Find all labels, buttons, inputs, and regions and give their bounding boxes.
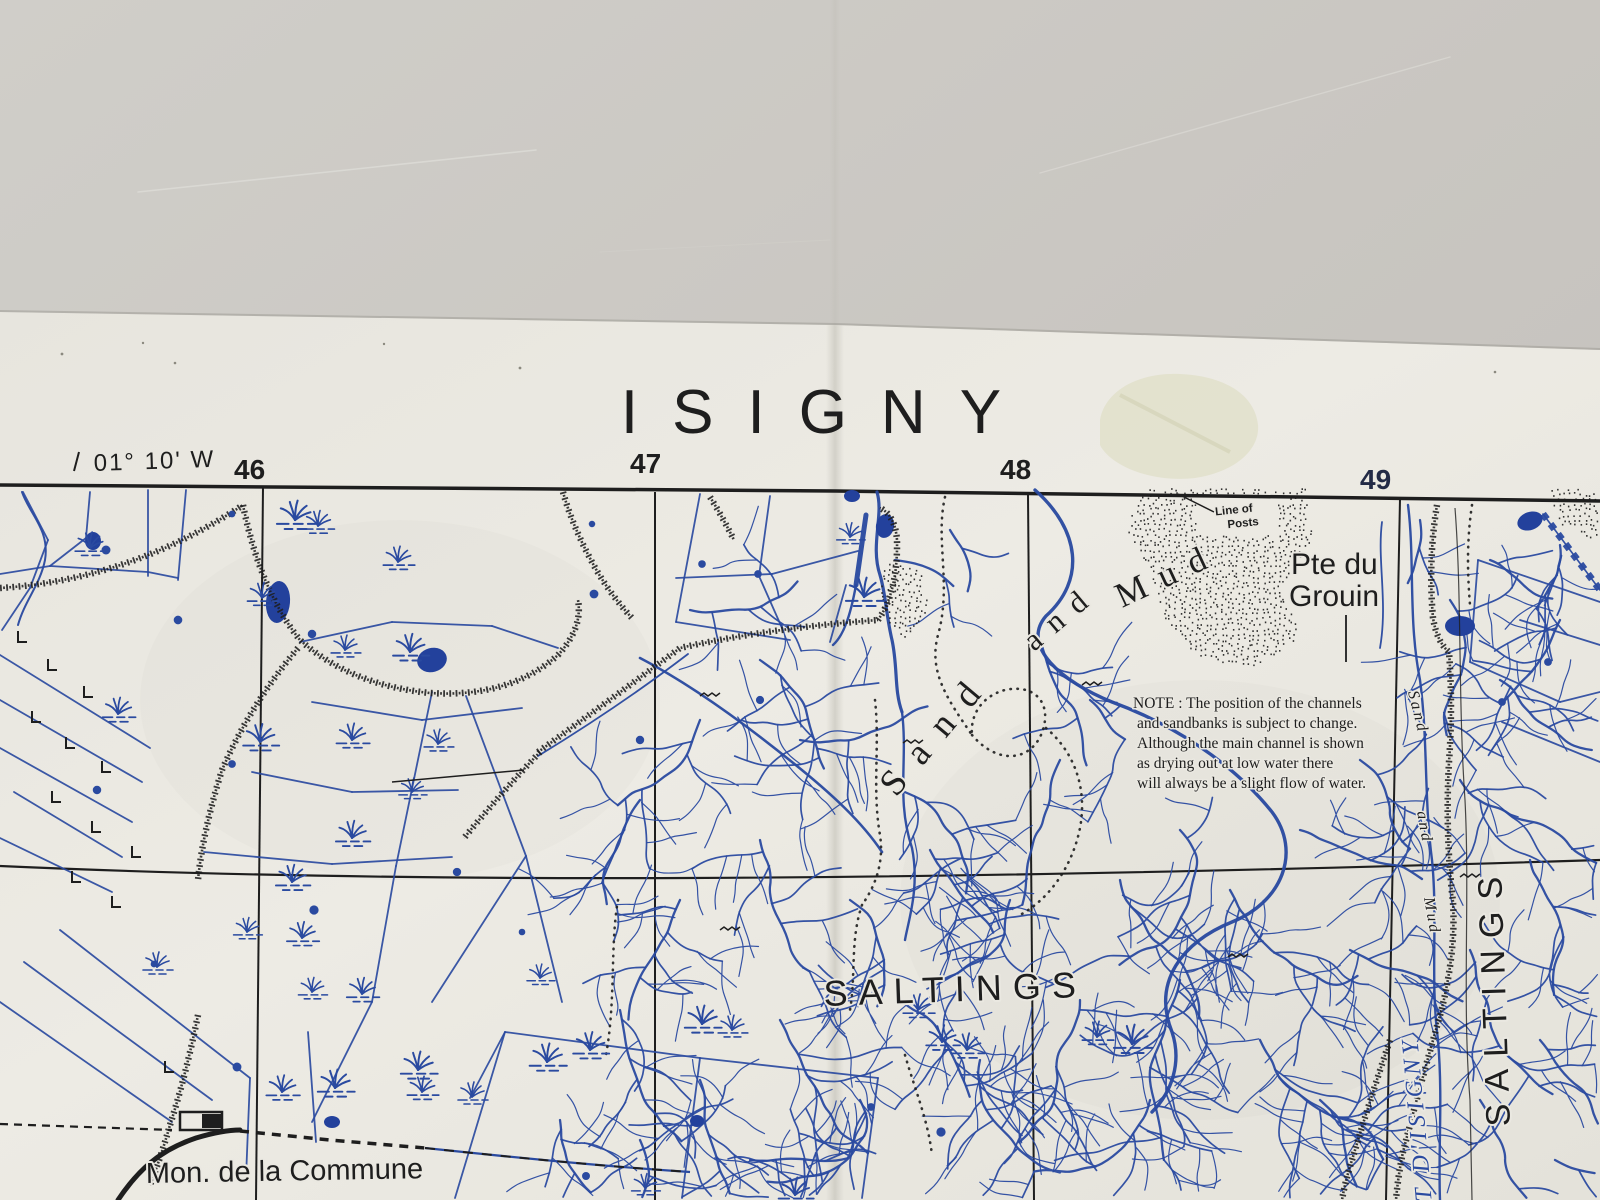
pte-du-grouin-label-2: Grouin	[1289, 580, 1379, 613]
note-line: as drying out at low water there	[1137, 755, 1333, 772]
graticule-label: 01° 10' W	[93, 446, 215, 477]
building-solid	[202, 1114, 222, 1128]
note-line: Although the main channel is shown	[1137, 735, 1364, 752]
grid-number-46: 46	[234, 454, 265, 485]
map-photo-canvas: ISIGNY 01° 10' W 46 47 48 49 Line of Pos…	[0, 0, 1600, 1200]
pte-du-grouin-label-1: Pte du	[1291, 548, 1378, 581]
note-block: NOTE : The position of the channels and …	[1133, 695, 1366, 792]
note-line: NOTE : The position of the channels	[1133, 695, 1362, 712]
photo-of-isigny-map: ISIGNY 01° 10' W 46 47 48 49 Line of Pos…	[0, 0, 1600, 1200]
grid-number-48: 48	[1000, 454, 1031, 485]
note-line: and sandbanks is subject to change.	[1137, 715, 1357, 732]
note-line: will always be a slight flow of water.	[1137, 775, 1366, 792]
grid-number-47: 47	[630, 448, 661, 479]
sheet-title: ISIGNY	[621, 378, 1035, 447]
mon-de-la-commune-label: Mon. de la Commune	[146, 1153, 424, 1190]
grid-number-49: 49	[1360, 464, 1391, 495]
